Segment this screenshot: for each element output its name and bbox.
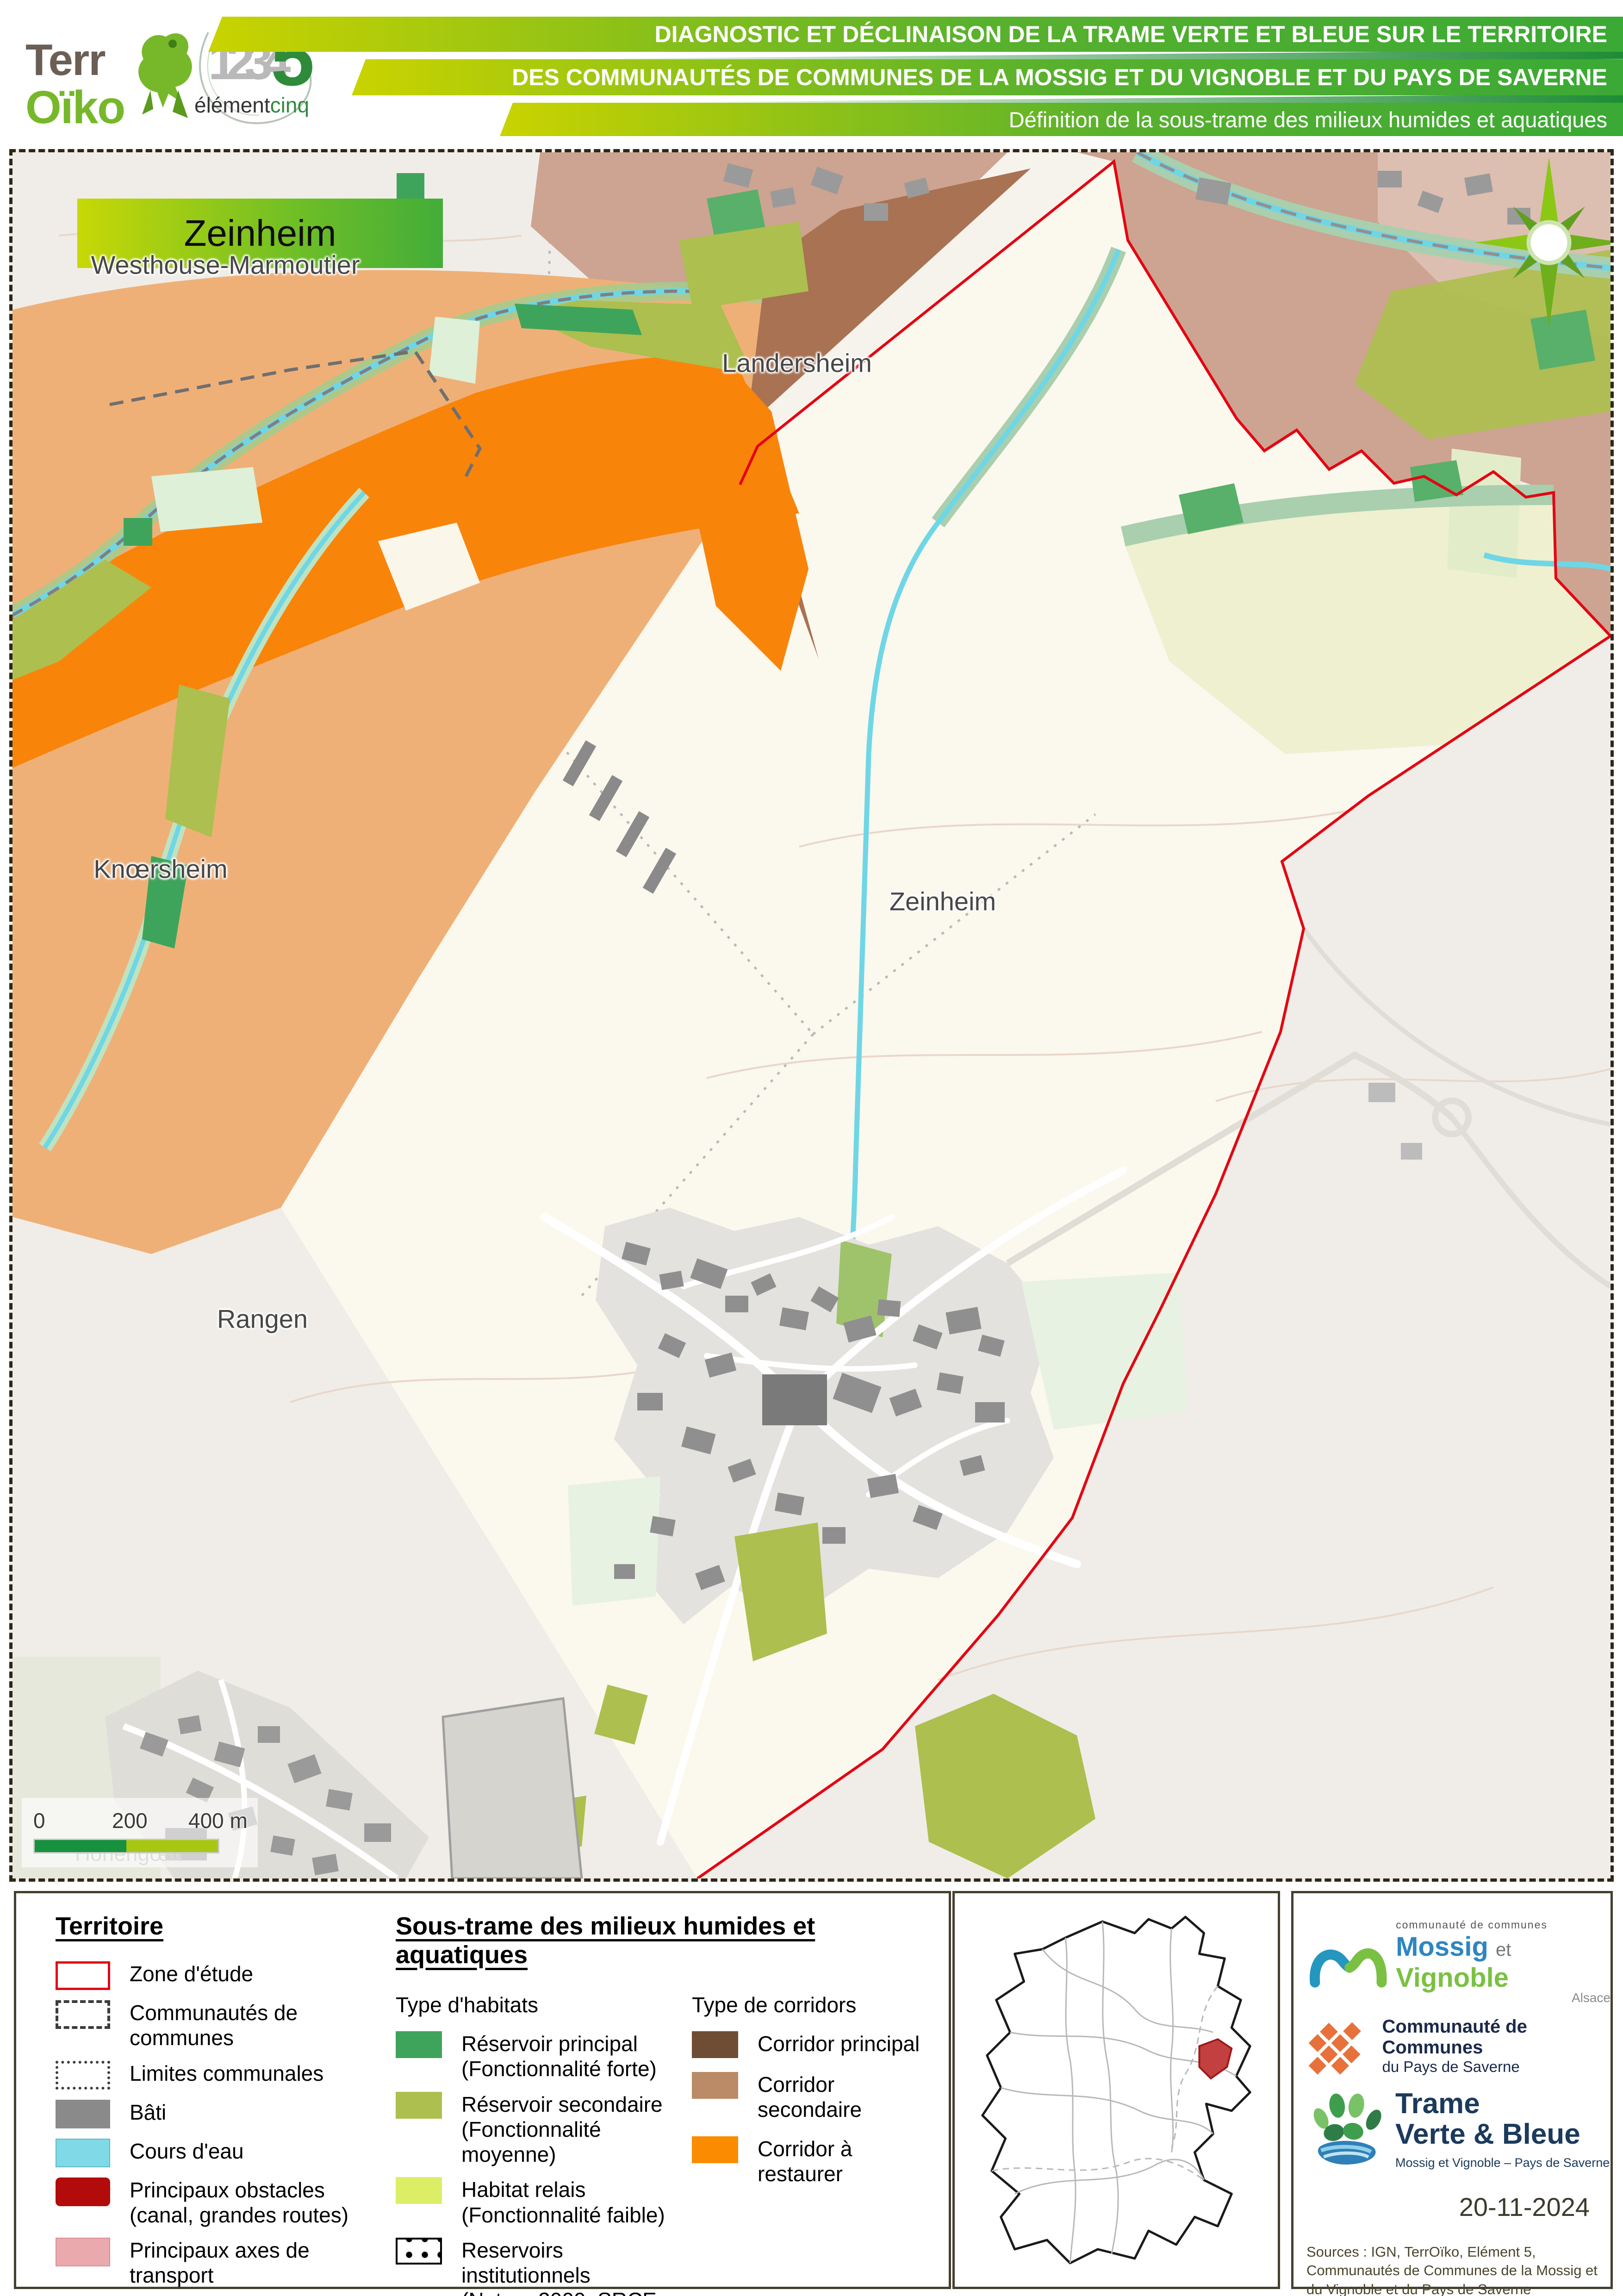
legend-item-limites: Limites communales: [56, 2061, 379, 2090]
legend-soustrame-title: Sous-trame des milieux humides et aquati…: [396, 1912, 937, 1969]
label-westhouse-marmoutier: Westhouse-Marmoutier: [91, 250, 360, 280]
reservoir-principal-label: Réservoir principal (Fonctionnalité fort…: [461, 2031, 657, 2082]
terroiko-logo-text1: Terr: [25, 35, 105, 86]
header: Terr Oïko 1234 5 élémentcinq DIAGNOSTIC …: [0, 0, 1623, 149]
label-landersheim: Landersheim: [722, 348, 872, 378]
legend-item-axes-transport: Principaux axes de transport: [56, 2238, 379, 2288]
obstacles-label: Principaux obstacles (canal, grandes rou…: [130, 2177, 348, 2228]
mossig-name: Mossig et Vignoble: [1396, 1931, 1611, 1993]
element5-name: élémentcinq: [194, 93, 309, 118]
corridor-principal-swatch: [692, 2031, 738, 2058]
cours-eau-label: Cours d'eau: [130, 2139, 244, 2164]
mossig-small-text: communauté de communes: [1396, 1919, 1611, 1931]
map-graphic: [12, 152, 1611, 1878]
communautes-swatch: [56, 2000, 110, 2029]
saverne-line2: du Pays de Saverne: [1382, 2058, 1611, 2076]
communautes-label: Communautés de communes: [130, 2000, 333, 2051]
legend-item-habitat-relais: Habitat relais (Fonctionnalité faible): [396, 2177, 692, 2227]
habitat-relais-swatch: [396, 2177, 442, 2204]
corridor-restaurer-label: Corridor à restaurer: [758, 2136, 937, 2187]
mossig-vignoble-logo-text: communauté de communes Mossig et Vignobl…: [1396, 1919, 1611, 2005]
scale-tick-200: 200: [112, 1808, 148, 1833]
legend-item-bati: Bâti: [56, 2100, 379, 2128]
legend-item-cours-eau: Cours d'eau: [56, 2139, 379, 2167]
scale-bar: 0 200 400 m: [22, 1798, 258, 1867]
reservoir-principal-swatch: [396, 2031, 442, 2058]
title-banner-2: DES COMMUNAUTÉS DE COMMUNES DE LA MOSSIG…: [352, 59, 1623, 95]
corridor-restaurer-swatch: [692, 2136, 738, 2163]
legend-corridors-column: Type de corridors Corridor principal Cor…: [692, 1969, 937, 2296]
scale-bar-segments: [33, 1839, 219, 1853]
legend-habitats-title: Type d'habitats: [396, 1992, 692, 2017]
legend-item-reservoir-secondaire: Réservoir secondaire (Fonctionnalité moy…: [396, 2092, 692, 2167]
legend-item-reservoir-principal: Réservoir principal (Fonctionnalité fort…: [396, 2031, 692, 2082]
corridor-secondaire-label: Corridor secondaire: [758, 2072, 937, 2122]
legend-corridors-title: Type de corridors: [692, 1992, 937, 2017]
sources-text: Sources : IGN, TerrOïko, Elément 5, Comm…: [1306, 2243, 1598, 2296]
legend-territoire: Territoire Zone d'étude Communautés de c…: [56, 1912, 379, 2296]
habitat-relais-label: Habitat relais (Fonctionnalité faible): [461, 2177, 665, 2227]
axes-transport-label: Principaux axes de transport: [130, 2238, 379, 2288]
tvb-logo: Trame Verte & Bleue Mossig et Vignoble –…: [1307, 2088, 1610, 2171]
element5-name-green: cinq: [270, 93, 309, 117]
inset-map-panel: [952, 1891, 1280, 2289]
tvb-line2: Verte & Bleue: [1395, 2119, 1610, 2149]
limites-swatch: [56, 2061, 110, 2090]
cours-eau-swatch: [56, 2139, 110, 2167]
obstacles-swatch: [56, 2177, 110, 2206]
legend-item-communautes: Communautés de communes: [56, 2000, 379, 2051]
legend-item-obstacles: Principaux obstacles (canal, grandes rou…: [56, 2177, 379, 2228]
legend-panel: Territoire Zone d'étude Communautés de c…: [14, 1891, 951, 2289]
tvb-logo-text: Trame Verte & Bleue Mossig et Vignoble –…: [1395, 2089, 1610, 2170]
legend-item-corridor-principal: Corridor principal: [692, 2031, 937, 2058]
saverne-logo-icon: [1307, 2011, 1371, 2081]
reservoir-secondaire-label: Réservoir secondaire (Fonctionnalité moy…: [461, 2092, 692, 2167]
legend-item-zone-etude: Zone d'étude: [56, 1961, 379, 1990]
saverne-logo-text: Communauté de Communes du Pays de Savern…: [1382, 2016, 1611, 2076]
label-rangen: Rangen: [217, 1304, 308, 1334]
scale-tick-0: 0: [33, 1808, 45, 1833]
mossig-vignoble-logo-icon: [1307, 1934, 1387, 1990]
reservoirs-institutionnels-label: Reservoirs institutionnels (Natura 2000,…: [461, 2238, 692, 2296]
mossig-vignoble-logo: communauté de communes Mossig et Vignobl…: [1307, 1919, 1611, 2005]
reservoirs-institutionnels-swatch: [396, 2238, 442, 2265]
zone-etude-label: Zone d'étude: [130, 1961, 253, 1986]
title-banner-3: Définition de la sous-trame des milieux …: [500, 103, 1623, 136]
scale-tick-400: 400 m: [188, 1808, 248, 1833]
title-banner-1: DIAGNOSTIC ET DÉCLINAISON DE LA TRAME VE…: [208, 17, 1623, 52]
tvb-logo-icon: [1307, 2088, 1386, 2171]
corridor-secondaire-swatch: [692, 2072, 738, 2099]
terroiko-logo: Terr Oïko: [25, 19, 178, 130]
legend-item-corridor-secondaire: Corridor secondaire: [692, 2072, 937, 2122]
saverne-line1: Communauté de Communes: [1382, 2016, 1611, 2058]
saverne-logo: Communauté de Communes du Pays de Savern…: [1307, 2011, 1611, 2081]
legend-habitats-column: Type d'habitats Réservoir principal (Fon…: [396, 1969, 692, 2296]
label-knoersheim: Knœrsheim: [93, 854, 227, 884]
axes-transport-swatch: [56, 2238, 110, 2266]
element5-name-dark: élément: [194, 93, 270, 117]
reservoir-secondaire-swatch: [396, 2092, 442, 2119]
zone-etude-swatch: [56, 1961, 110, 1990]
main-map: Zeinheim Westhouse-Marmoutier Landershei…: [9, 149, 1614, 1882]
legend-soustrame: Sous-trame des milieux humides et aquati…: [396, 1912, 937, 2296]
tvb-line1: Trame: [1395, 2089, 1610, 2119]
tvb-subtitle: Mossig et Vignoble – Pays de Saverne: [1395, 2156, 1610, 2170]
legend-territoire-title: Territoire: [56, 1912, 379, 1940]
credits-panel: communauté de communes Mossig et Vignobl…: [1291, 1891, 1613, 2289]
limites-label: Limites communales: [130, 2061, 323, 2086]
legend-item-reservoirs-institutionnels: Reservoirs institutionnels (Natura 2000,…: [396, 2238, 692, 2296]
map-date: 20-11-2024: [1459, 2192, 1590, 2222]
terroiko-logo-text2: Oïko: [25, 81, 124, 134]
bati-swatch: [56, 2100, 110, 2128]
inset-territory-map: [955, 1893, 1278, 2287]
map-sheet: Terr Oïko 1234 5 élémentcinq DIAGNOSTIC …: [0, 0, 1623, 2296]
legend-item-corridor-restaurer: Corridor à restaurer: [692, 2136, 937, 2187]
label-zeinheim: Zeinheim: [889, 886, 996, 917]
bati-label: Bâti: [130, 2100, 166, 2125]
corridor-principal-label: Corridor principal: [758, 2031, 920, 2056]
